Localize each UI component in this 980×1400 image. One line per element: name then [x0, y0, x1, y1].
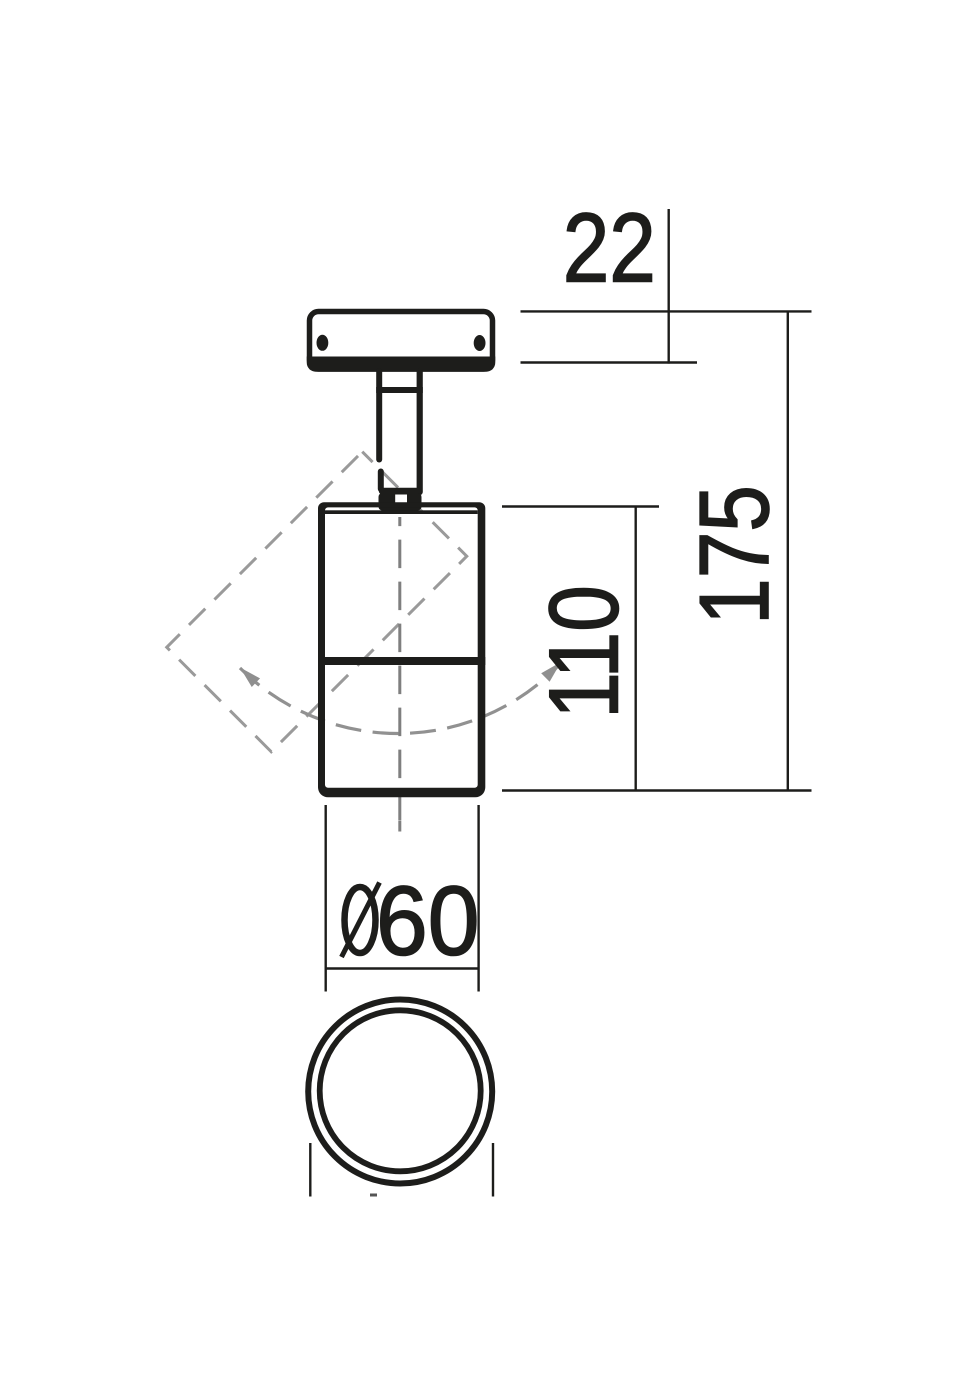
svg-text:60: 60 [376, 866, 480, 976]
svg-text:175: 175 [680, 485, 790, 625]
svg-text:110: 110 [529, 585, 639, 719]
svg-text:22: 22 [563, 193, 656, 303]
